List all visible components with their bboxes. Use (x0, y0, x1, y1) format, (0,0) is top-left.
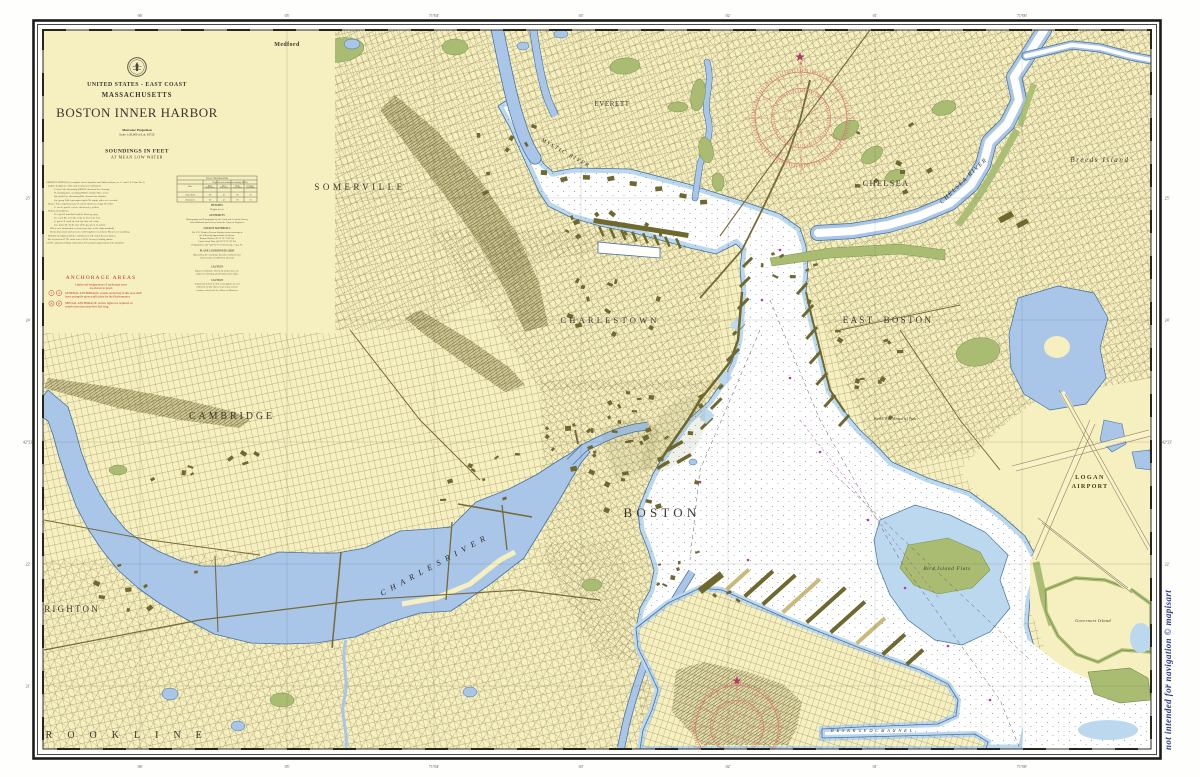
svg-text:leave promptly upon notificati: leave promptly upon notification by the … (65, 295, 131, 299)
svg-text:BOSTON INNER HARBOR: BOSTON INNER HARBOR (56, 105, 218, 120)
svg-text:01': 01' (873, 13, 878, 18)
svg-text:with additional past surveys f: with additional past surveys from the Co… (190, 221, 245, 224)
svg-text:BRIGHTON: BRIGHTON (36, 604, 100, 614)
svg-text:Breeds Island: Breeds Island (1070, 156, 1129, 164)
svg-text:CAUTION: CAUTION (211, 279, 223, 282)
svg-text:Rocks that awash and uncover,: Rocks that awash and uncover, with heigh… (50, 231, 130, 234)
svg-text:Castle Island: Castle Island (185, 195, 195, 197)
svg-text:-3.5: -3.5 (249, 195, 252, 197)
svg-text:4.7: 4.7 (223, 200, 225, 202)
svg-text:Grs. grass Sh. shells: Grs. grass Sh. shells sml. white gn. gre… (54, 224, 106, 227)
svg-text:71°04': 71°04' (429, 13, 440, 18)
svg-text:Buoys: T.B. temporary buoy: Buoys: T.B. temporary buoy N. nun B. bla… (48, 202, 114, 205)
svg-text:vessels less than sixty-five f: vessels less than sixty-five feet long. (65, 305, 109, 309)
svg-text:03': 03' (579, 764, 584, 769)
svg-text:03': 03' (579, 13, 584, 18)
svg-text:TIDAL INFORMATION: TIDAL INFORMATION (206, 177, 229, 180)
svg-text:Tide Level: Tide Level (220, 187, 229, 189)
svg-text:MASSACHUSETTS: MASSACHUSETTS (102, 92, 172, 99)
svg-text:4.7: 4.7 (223, 195, 225, 197)
svg-text:Governors Island: Governors Island (1075, 618, 1111, 623)
svg-text:R E S E R V E D C H A N N E: R E S E R V E D C H A N N E L (830, 728, 913, 733)
svg-text:06': 06' (138, 13, 143, 18)
svg-text:EAST BOSTON: EAST BOSTON (843, 315, 933, 325)
svg-text:0.0: 0.0 (236, 200, 238, 202)
svg-text:High Water: High Water (206, 186, 215, 189)
svg-text:are shown in green: are shown in green (90, 286, 113, 290)
svg-text:05': 05' (285, 764, 290, 769)
svg-text:World War Memorial Park: World War Memorial Park (874, 417, 917, 421)
svg-text:Height referred to datum of so: Height referred to datum of soundings (M… (212, 181, 248, 184)
svg-text:EVERETT: EVERETT (594, 100, 629, 108)
svg-text:Mercator Projection: Mercator Projection (122, 128, 152, 132)
svg-text:22': 22' (26, 562, 31, 567)
svg-text:F. fixed Alt. alter: F. fixed Alt. alternating GROUP. obscure… (54, 188, 110, 191)
svg-text:AUTHORITY: AUTHORITY (209, 214, 225, 217)
svg-text:CHELSEA: CHELSEA (863, 178, 910, 188)
svg-text:AIRPORT: AIRPORT (1072, 483, 1109, 490)
svg-text:24': 24' (1165, 318, 1170, 323)
svg-text:ABBREVIATIONS (For complete: ABBREVIATIONS (For complete list of Symb… (46, 181, 145, 184)
svg-text:subject to shoaling, particula: subject to shoaling, particularly at the… (196, 273, 238, 276)
svg-text:Medford: Medford (274, 42, 300, 48)
svg-text:05': 05' (285, 13, 290, 18)
svg-text:71°04': 71°04' (429, 764, 440, 769)
svg-text:BROOKLINE: BROOKLINE (24, 730, 217, 741)
svg-text:CAUTION: CAUTION (211, 266, 223, 269)
svg-text:Charlestown: Charlestown (185, 200, 195, 202)
svg-text:24': 24' (26, 318, 31, 323)
svg-text:71°00': 71°00' (1017, 764, 1028, 769)
svg-text:-3.5: -3.5 (249, 200, 252, 202)
svg-text:02': 02' (726, 764, 731, 769)
svg-text:SOURCE MATERIALS: SOURCE MATERIALS (204, 227, 232, 230)
svg-text:Display Base (42°-(42°22' N 71: Display Base (42°-(42°22' N 71°03') Long… (192, 243, 243, 246)
svg-text:4: 4 (58, 291, 60, 295)
svg-text:02': 02' (726, 13, 731, 18)
svg-text:HEIGHTS: HEIGHTS (211, 204, 224, 207)
svg-text:9.6: 9.6 (209, 200, 211, 202)
svg-text:06': 06' (138, 764, 143, 769)
svg-text:remains a fixed aid. See No: remains a fixed aid. See Notice to Marin… (196, 289, 238, 292)
svg-text:CHARLESTOWN: CHARLESTOWN (560, 315, 659, 325)
svg-text:Bottom descriptions:: Bottom descriptions: (48, 209, 69, 212)
svg-text:ANCHORAGE AREAS: ANCHORAGE AREAS (66, 275, 137, 281)
svg-text:6: 6 (58, 302, 60, 306)
svg-text:21': 21' (26, 684, 31, 689)
svg-text:71°00': 71°00' (1017, 13, 1028, 18)
svg-text:SOMERVILLE: SOMERVILLE (314, 182, 405, 192)
svg-text:Low Water: Low Water (233, 187, 242, 189)
svg-text:Co. coral Rk. reef: Co. coral Rk. reef stk. rocky st. brown … (54, 217, 100, 220)
svg-text:Bird Island Flats: Bird Island Flats (923, 566, 971, 572)
svg-text:Heights in feet: Heights in feet (210, 208, 224, 211)
svg-text:CAMBRIDGE: CAMBRIDGE (189, 411, 275, 422)
svg-text:1: 1 (51, 291, 53, 295)
svg-text:not intended for navigation ©: not intended for navigation © mapisart (1163, 590, 1173, 750)
svg-text:Place: Place (188, 186, 192, 188)
svg-text:Bn. beybeacon R TR: Bn. beybeacon R TR. radio tower S.P.O. S… (48, 238, 113, 241)
svg-text:42°23': 42°23' (23, 440, 34, 445)
svg-text:Low Water: Low Water (246, 187, 255, 189)
svg-text:25': 25' (1165, 196, 1170, 201)
svg-text:9.6: 9.6 (209, 195, 211, 197)
svg-text:PLANE COORDINATE GRID: PLANE COORDINATE GRID (200, 250, 235, 253)
svg-text:22': 22' (1165, 562, 1170, 567)
svg-text:0.0: 0.0 (236, 195, 238, 197)
svg-text:UNITED STATES - EAST COAST: UNITED STATES - EAST COAST (87, 82, 187, 88)
svg-text:LOGAN: LOGAN (1075, 474, 1105, 481)
svg-text:AUTH. authorized Major obstr: AUTH. authorized Major obstruction P.V. … (46, 241, 124, 244)
svg-text:intersections at 5,000-foot in: intersections at 5,000-foot intervals (200, 256, 234, 259)
svg-text:01': 01' (873, 764, 878, 769)
svg-text:BOSTON: BOSTON (624, 505, 701, 520)
svg-text:Qk. quick Gp. altern: Qk. quick Gp. alternating Obs. obscured … (54, 195, 106, 198)
svg-text:42°23': 42°23' (1162, 440, 1173, 445)
svg-text:25': 25' (26, 196, 31, 201)
svg-text:AT MEAN LOW WATER: AT MEAN LOW WATER (111, 155, 163, 160)
